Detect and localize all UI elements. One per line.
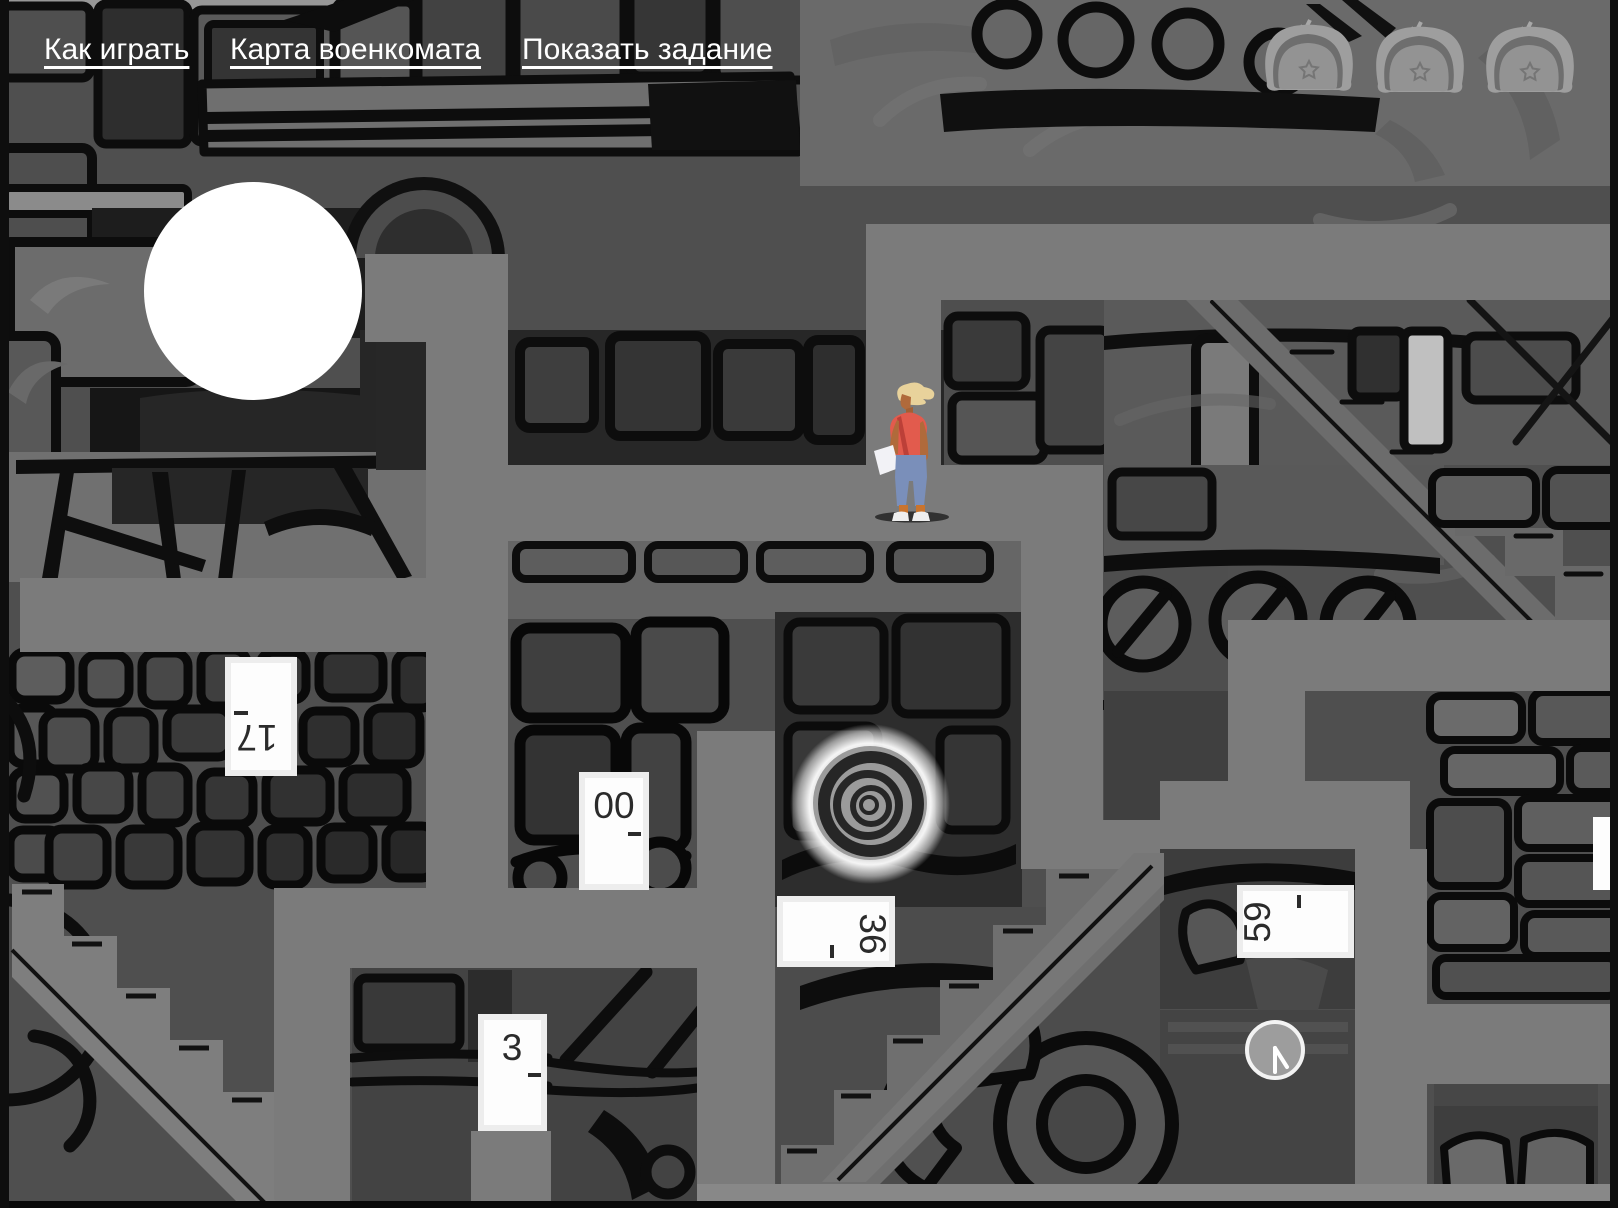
svg-text:3: 3: [502, 1027, 523, 1068]
svg-text:36: 36: [852, 913, 893, 954]
svg-text:17: 17: [236, 717, 277, 758]
svg-text:59: 59: [1237, 901, 1278, 942]
svg-text:00: 00: [593, 785, 634, 826]
